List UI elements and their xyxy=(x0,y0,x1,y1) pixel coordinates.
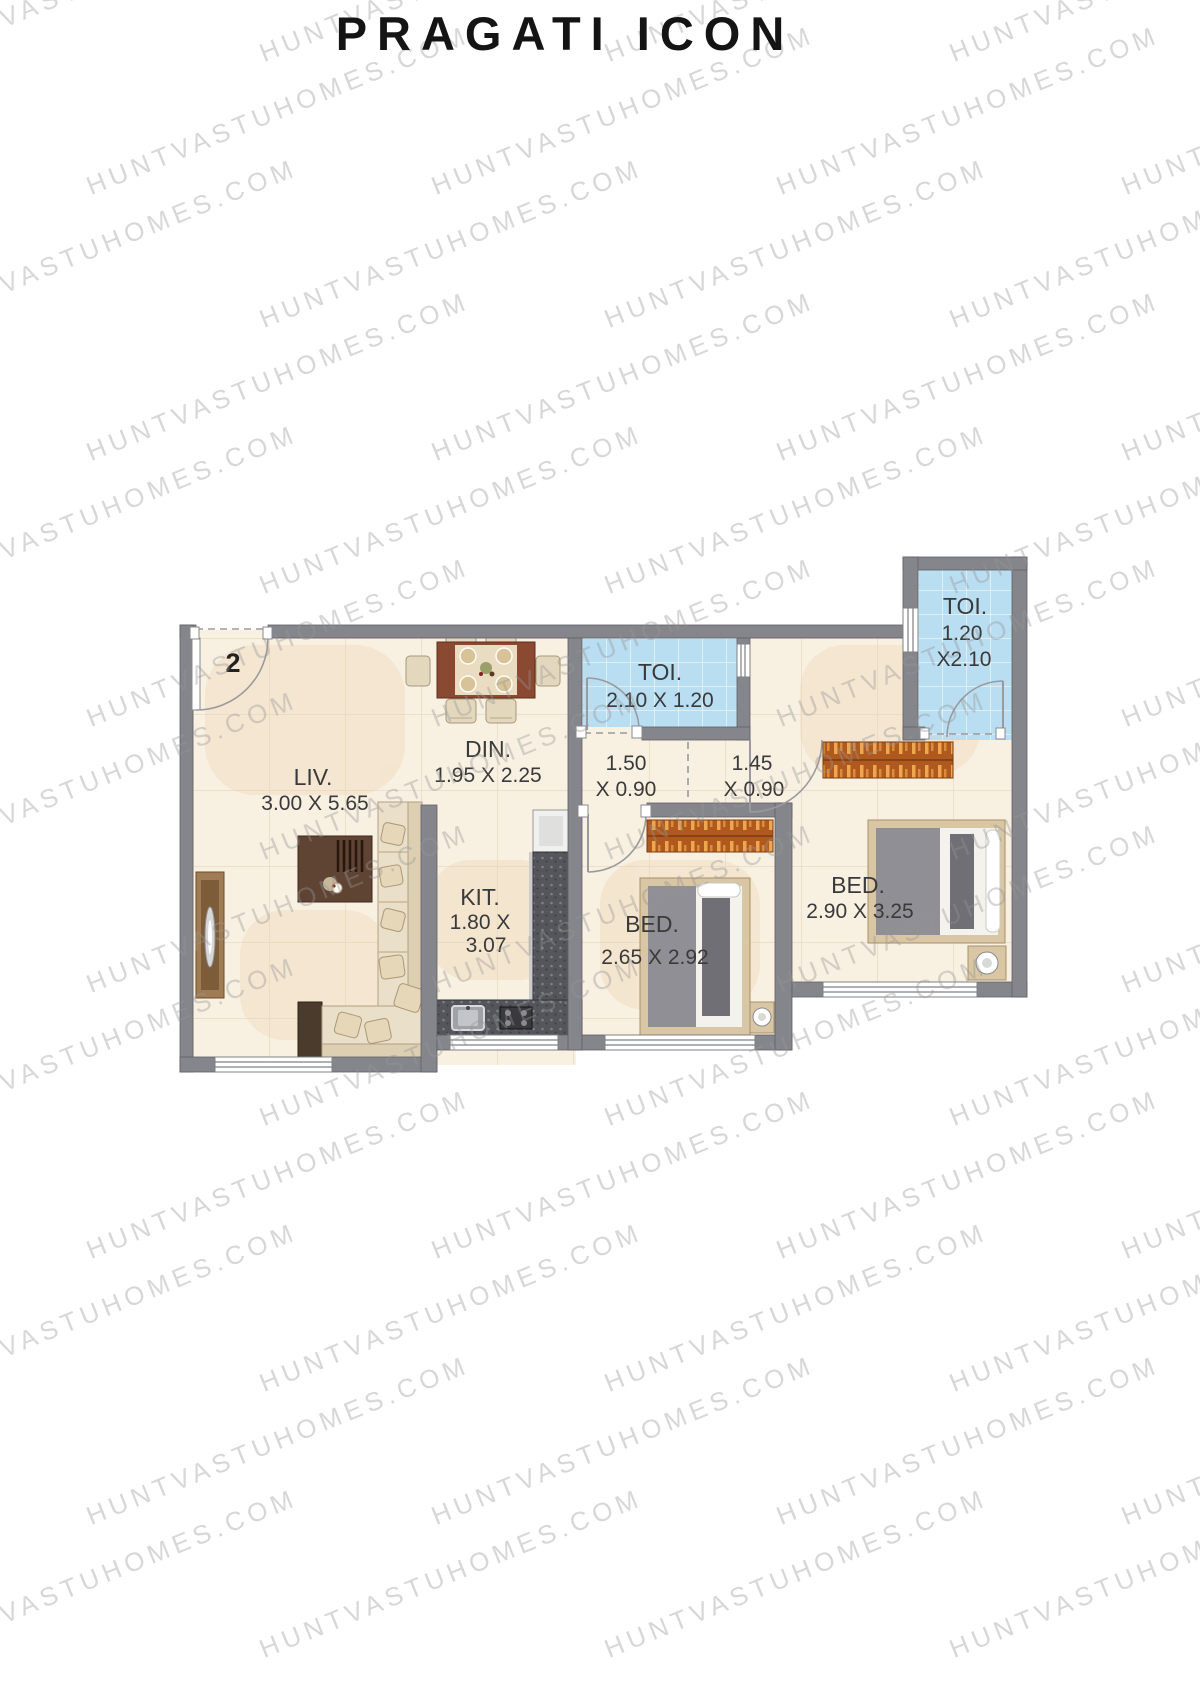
page: 2 LIV. 3.00 X 5.65 DIN. 1.95 X 2.25 KIT.… xyxy=(0,0,1200,1697)
room-dims-living: 3.00 X 5.65 xyxy=(261,792,368,815)
room-label-bedroom-1: BED. xyxy=(625,911,679,937)
floor-plan: 2 LIV. 3.00 X 5.65 DIN. 1.95 X 2.25 KIT.… xyxy=(0,0,1200,1697)
room-label-toilet-2: TOI. xyxy=(943,593,987,619)
wardrobe xyxy=(823,742,953,778)
room-dims-toilet-1: 2.10 X 1.20 xyxy=(606,689,713,712)
page-title: PRAGATI ICON xyxy=(0,6,1130,61)
stove xyxy=(500,1007,532,1029)
refrigerator xyxy=(533,810,569,852)
room-label-living: LIV. xyxy=(294,764,333,790)
room-dims-toilet-2-2: X2.10 xyxy=(937,648,992,671)
room-label-bedroom-2: BED. xyxy=(831,872,885,898)
bed xyxy=(868,820,1005,943)
tv-unit xyxy=(196,872,224,998)
wardrobe xyxy=(647,820,773,852)
room-dims-kitchen-1: 1.80 X xyxy=(450,911,511,934)
room-dims-dining: 1.95 X 2.25 xyxy=(434,764,541,787)
room-label-dining: DIN. xyxy=(465,736,511,762)
passage-1-dims-1: 1.50 xyxy=(606,752,647,775)
room-label-kitchen: KIT. xyxy=(460,884,500,910)
bedside-table xyxy=(968,946,1006,980)
sink xyxy=(452,1006,484,1030)
room-dims-toilet-2-1: 1.20 xyxy=(942,622,983,645)
room-dims-bedroom-1: 2.65 X 2.92 xyxy=(601,946,708,969)
unit-number: 2 xyxy=(225,648,240,678)
passage-2-dims-2: X 0.90 xyxy=(724,778,785,801)
dining-table xyxy=(437,642,535,698)
bedside-table xyxy=(750,1002,774,1033)
room-dims-kitchen-2: 3.07 xyxy=(466,934,507,957)
room-dims-bedroom-2: 2.90 X 3.25 xyxy=(806,900,913,923)
passage-1-dims-2: X 0.90 xyxy=(596,778,657,801)
coffee-table xyxy=(298,836,372,902)
room-label-toilet-1: TOI. xyxy=(638,659,682,685)
passage-2-dims-1: 1.45 xyxy=(732,752,773,775)
